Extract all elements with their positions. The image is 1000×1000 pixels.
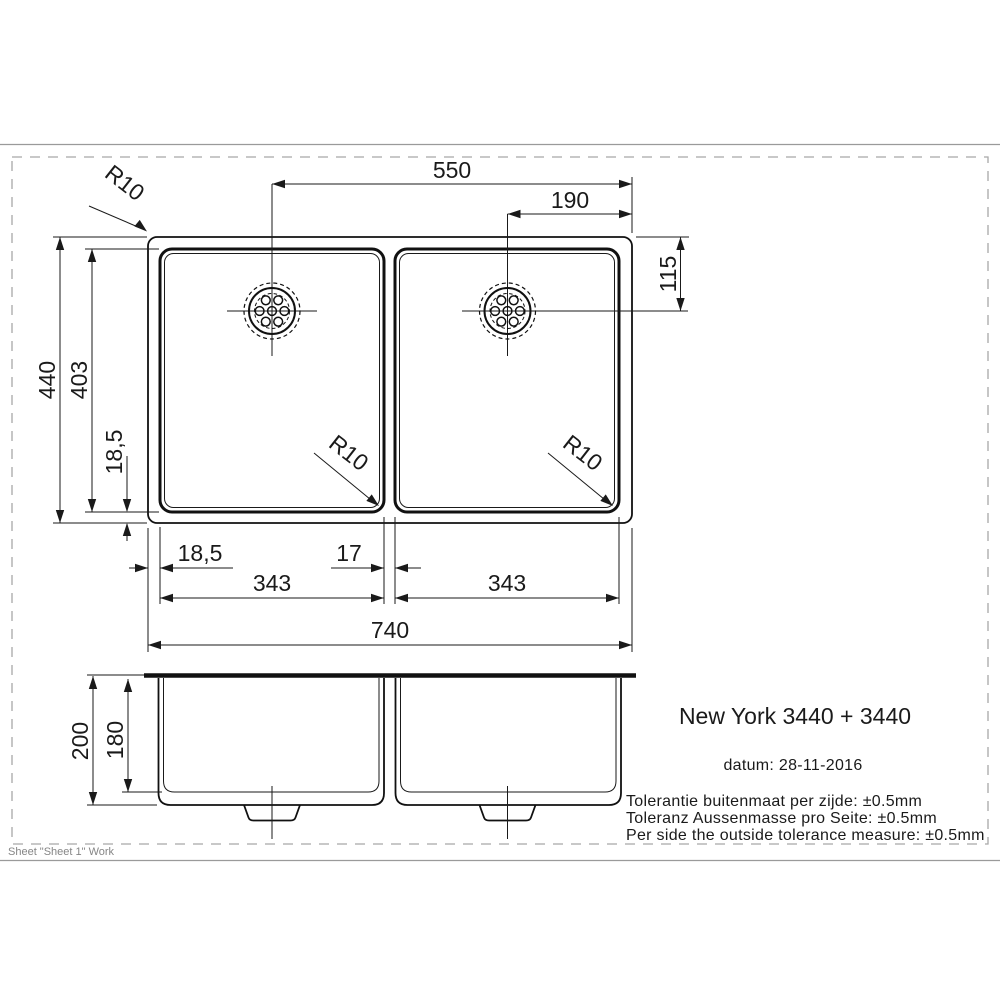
dim-18-5-bottom-label: 18,5 bbox=[178, 540, 223, 566]
front-bowl-left bbox=[159, 678, 385, 839]
tolerance-en: Per side the outside tolerance measure: … bbox=[626, 827, 985, 844]
dim-343-left-label: 343 bbox=[253, 570, 291, 596]
front-view: 200 180 bbox=[67, 675, 636, 839]
dim-740: 740 bbox=[148, 617, 632, 649]
dim-17-label: 17 bbox=[336, 540, 362, 566]
dim-18-5-bottom: 18,5 bbox=[129, 540, 233, 572]
dim-190: 190 bbox=[508, 187, 633, 218]
dim-200: 200 bbox=[67, 676, 97, 805]
info-block: New York 3440 + 3440 datum: 28-11-2016 T… bbox=[626, 703, 985, 844]
dim-18-5-vertical-label: 18,5 bbox=[101, 430, 127, 475]
dim-550-label: 550 bbox=[433, 157, 471, 183]
date-label: datum: 28-11-2016 bbox=[723, 757, 862, 774]
tolerance-de: Toleranz Aussenmasse pro Seite: ±0.5mm bbox=[626, 810, 937, 827]
radius-bowl-right-label: R10 bbox=[558, 429, 607, 475]
dim-440-label: 440 bbox=[34, 361, 60, 399]
sheet-note: Sheet "Sheet 1" Work bbox=[8, 846, 115, 858]
dim-403-label: 403 bbox=[66, 361, 92, 399]
dim-403: 403 bbox=[66, 249, 96, 512]
dim-440: 440 bbox=[34, 237, 64, 523]
dim-180: 180 bbox=[102, 679, 132, 792]
radius-bowl-left-label: R10 bbox=[324, 429, 373, 475]
drain-left bbox=[227, 184, 317, 356]
dim-17: 17 bbox=[331, 540, 421, 572]
dim-190-label: 190 bbox=[551, 187, 589, 213]
sheet-frame bbox=[0, 145, 1000, 861]
radius-callout-outer: R10 bbox=[89, 159, 150, 234]
dim-343-left: 343 bbox=[160, 570, 384, 602]
radius-callout-bowl-right: R10 bbox=[548, 429, 616, 509]
dim-18-5-vertical: 18,5 bbox=[101, 430, 131, 541]
dim-200-label: 200 bbox=[67, 722, 93, 760]
dim-740-label: 740 bbox=[371, 617, 409, 643]
front-bowl-right bbox=[396, 678, 622, 839]
radius-outer-label: R10 bbox=[100, 159, 149, 205]
drawing-sheet: 550 190 115 440 403 bbox=[0, 0, 1000, 1000]
dim-180-label: 180 bbox=[102, 721, 128, 759]
dim-343-right: 343 bbox=[395, 570, 619, 602]
radius-callout-bowl-left: R10 bbox=[314, 429, 382, 509]
technical-drawing: 550 190 115 440 403 bbox=[0, 0, 1000, 1000]
dim-115: 115 bbox=[655, 237, 685, 311]
tolerance-nl: Tolerantie buitenmaat per zijde: ±0.5mm bbox=[626, 793, 922, 810]
dim-343-right-label: 343 bbox=[488, 570, 526, 596]
dim-550: 550 bbox=[272, 157, 632, 188]
sink-outer-outline bbox=[148, 237, 632, 523]
top-view: 550 190 115 440 403 bbox=[34, 157, 689, 652]
product-title: New York 3440 + 3440 bbox=[679, 703, 911, 729]
dim-115-label: 115 bbox=[655, 256, 681, 293]
